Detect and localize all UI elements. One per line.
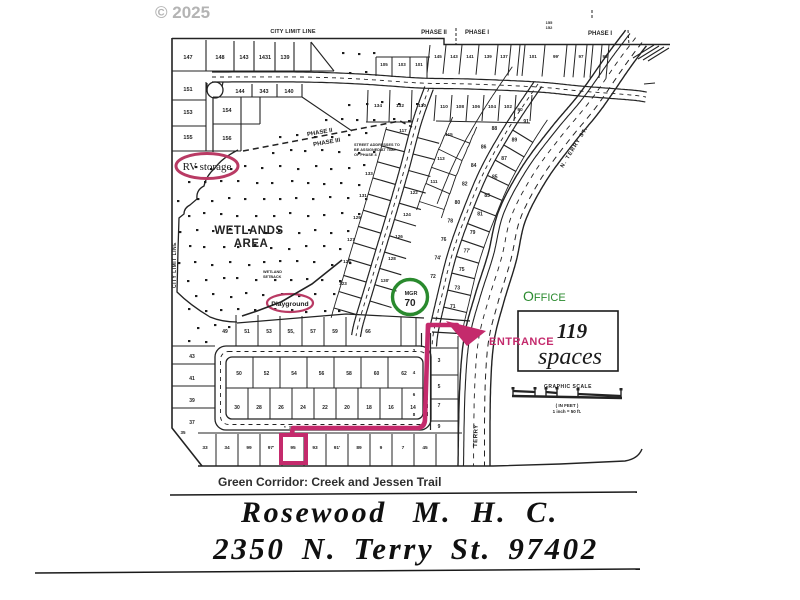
svg-text:77': 77' — [464, 249, 471, 255]
svg-text:117: 117 — [399, 128, 407, 133]
svg-text:127: 127 — [347, 237, 355, 242]
svg-text:137: 137 — [500, 54, 508, 59]
svg-text:95: 95 — [602, 54, 608, 59]
svg-text:134: 134 — [374, 103, 382, 109]
svg-text:99: 99 — [246, 445, 252, 451]
svg-text:141: 141 — [466, 54, 474, 59]
svg-text:PHASE I: PHASE I — [588, 31, 612, 37]
svg-text:TERRY: TERRY — [473, 424, 480, 447]
svg-text:151: 151 — [183, 87, 192, 93]
svg-text:75: 75 — [459, 267, 465, 273]
svg-text:110: 110 — [440, 104, 448, 110]
svg-text:2350 N. Terry St. 97402: 2350 N. Terry St. 97402 — [212, 531, 599, 566]
svg-text:82: 82 — [462, 182, 468, 188]
svg-text:85: 85 — [492, 175, 498, 181]
svg-text:WETLAND: WETLAND — [263, 270, 282, 274]
svg-text:52: 52 — [264, 371, 270, 377]
svg-text:PHASE I: PHASE I — [465, 30, 489, 36]
svg-text:66: 66 — [365, 329, 371, 335]
svg-text:343: 343 — [259, 89, 268, 95]
svg-text:130': 130' — [381, 278, 390, 283]
svg-text:73: 73 — [455, 286, 461, 292]
svg-text:28: 28 — [256, 405, 262, 411]
svg-text:102: 102 — [504, 104, 512, 110]
svg-text:33: 33 — [202, 445, 208, 451]
svg-text:154: 154 — [222, 108, 232, 114]
svg-text:89: 89 — [512, 138, 518, 144]
svg-text:OF PHASE 4: OF PHASE 4 — [354, 153, 377, 157]
svg-text:97: 97 — [578, 54, 584, 59]
svg-text:59: 59 — [332, 329, 338, 335]
svg-text:81: 81 — [477, 212, 483, 218]
svg-text:PHASE II: PHASE II — [421, 30, 447, 36]
svg-text:80: 80 — [455, 200, 461, 206]
svg-text:MGR: MGR — [405, 291, 418, 297]
svg-text:145: 145 — [434, 54, 442, 59]
svg-text:86: 86 — [481, 145, 487, 151]
svg-text:133: 133 — [365, 171, 373, 176]
svg-text:101: 101 — [415, 62, 423, 67]
svg-text:16: 16 — [388, 405, 394, 411]
svg-text:108: 108 — [456, 104, 464, 110]
svg-text:90: 90 — [517, 107, 523, 113]
svg-text:152: 152 — [546, 25, 553, 30]
svg-text:Playground: Playground — [271, 301, 308, 308]
svg-text:CITY LIMIT LINE: CITY LIMIT LINE — [270, 29, 316, 35]
svg-text:148: 148 — [215, 55, 224, 61]
svg-text:ENTRANCE: ENTRANCE — [489, 336, 554, 348]
svg-text:55,: 55, — [288, 329, 296, 335]
svg-text:56: 56 — [319, 371, 325, 377]
svg-text:155: 155 — [183, 135, 192, 141]
svg-text:34: 34 — [224, 445, 230, 451]
svg-text:95: 95 — [290, 445, 296, 451]
svg-text:70: 70 — [404, 298, 416, 309]
svg-text:84: 84 — [471, 163, 477, 169]
svg-text:7: 7 — [402, 445, 405, 451]
svg-text:AREA: AREA — [234, 238, 269, 250]
svg-text:128: 128 — [388, 256, 396, 261]
svg-text:101: 101 — [529, 54, 537, 59]
svg-text:22: 22 — [322, 405, 328, 411]
svg-text:143: 143 — [450, 54, 458, 59]
svg-text:91': 91' — [334, 445, 340, 451]
svg-text:39: 39 — [189, 398, 195, 404]
svg-text:88: 88 — [492, 126, 498, 132]
svg-text:STREET ADDRESSES TO: STREET ADDRESSES TO — [354, 143, 400, 147]
svg-text:RV storage: RV storage — [183, 161, 232, 173]
svg-text:( IN FEET ): ( IN FEET ) — [556, 403, 579, 408]
svg-text:51: 51 — [244, 329, 250, 335]
svg-text:74': 74' — [434, 256, 441, 262]
svg-text:5: 5 — [438, 384, 441, 390]
svg-text:43: 43 — [189, 354, 195, 360]
svg-text:106: 106 — [472, 104, 480, 110]
svg-text:9: 9 — [438, 424, 441, 430]
svg-text:76: 76 — [441, 237, 447, 243]
svg-text:54: 54 — [291, 371, 297, 377]
svg-text:83: 83 — [484, 193, 490, 199]
svg-text:124: 124 — [403, 212, 411, 217]
svg-text:18: 18 — [366, 405, 372, 411]
svg-text:1431: 1431 — [259, 55, 271, 61]
svg-text:126: 126 — [395, 234, 403, 239]
svg-text:113: 113 — [437, 156, 445, 161]
svg-text:41: 41 — [189, 376, 195, 382]
svg-text:24: 24 — [300, 405, 306, 411]
svg-text:14: 14 — [410, 405, 416, 411]
svg-text:78: 78 — [448, 219, 454, 225]
svg-text:97': 97' — [268, 445, 274, 451]
svg-text:9: 9 — [380, 445, 383, 451]
svg-text:93: 93 — [312, 445, 318, 451]
svg-text:58: 58 — [346, 371, 352, 377]
svg-text:57: 57 — [310, 329, 316, 335]
svg-text:50: 50 — [236, 371, 242, 377]
svg-text:105: 105 — [380, 62, 388, 67]
svg-text:GRAPHIC SCALE: GRAPHIC SCALE — [544, 384, 592, 390]
svg-text:87: 87 — [501, 156, 507, 162]
svg-text:37: 37 — [189, 420, 195, 426]
svg-text:35: 35 — [180, 430, 186, 435]
svg-text:© 2025: © 2025 — [155, 3, 210, 22]
svg-text:91: 91 — [523, 119, 529, 125]
svg-text:3: 3 — [438, 358, 441, 364]
svg-text:143: 143 — [239, 55, 248, 61]
svg-text:147: 147 — [183, 55, 192, 61]
svg-text:111: 111 — [430, 179, 438, 184]
svg-text:144: 144 — [235, 89, 245, 95]
svg-text:79: 79 — [470, 230, 476, 236]
svg-text:103: 103 — [398, 62, 406, 67]
svg-text:20: 20 — [344, 405, 350, 411]
svg-text:104: 104 — [488, 104, 496, 110]
svg-text:30: 30 — [234, 405, 240, 411]
svg-text:99': 99' — [553, 54, 559, 59]
svg-text:130: 130 — [418, 103, 426, 109]
svg-text:1 inch = 50 ft.: 1 inch = 50 ft. — [553, 409, 582, 414]
svg-text:Green Corridor: Creek and Jess: Green Corridor: Creek and Jessen Trail — [218, 475, 441, 489]
svg-text:62: 62 — [401, 371, 407, 377]
svg-text:122: 122 — [410, 190, 418, 195]
svg-text:153: 153 — [183, 110, 192, 116]
svg-text:SETBACK: SETBACK — [263, 275, 282, 279]
svg-text:49: 49 — [222, 329, 228, 335]
svg-text:72: 72 — [430, 274, 436, 280]
svg-text:7: 7 — [438, 403, 441, 409]
svg-text:156: 156 — [222, 136, 231, 142]
svg-text:71: 71 — [450, 304, 456, 310]
svg-text:139: 139 — [484, 54, 492, 59]
svg-text:60: 60 — [374, 371, 380, 377]
svg-text:53: 53 — [266, 329, 272, 335]
svg-text:115: 115 — [445, 132, 453, 137]
svg-text:119: 119 — [557, 319, 588, 343]
svg-text:139: 139 — [280, 55, 289, 61]
svg-text:129: 129 — [353, 215, 361, 220]
svg-text:140: 140 — [284, 89, 293, 95]
svg-text:131: 131 — [359, 193, 367, 198]
svg-text:45: 45 — [422, 445, 428, 451]
svg-text:26: 26 — [278, 405, 284, 411]
svg-text:89: 89 — [356, 445, 362, 451]
